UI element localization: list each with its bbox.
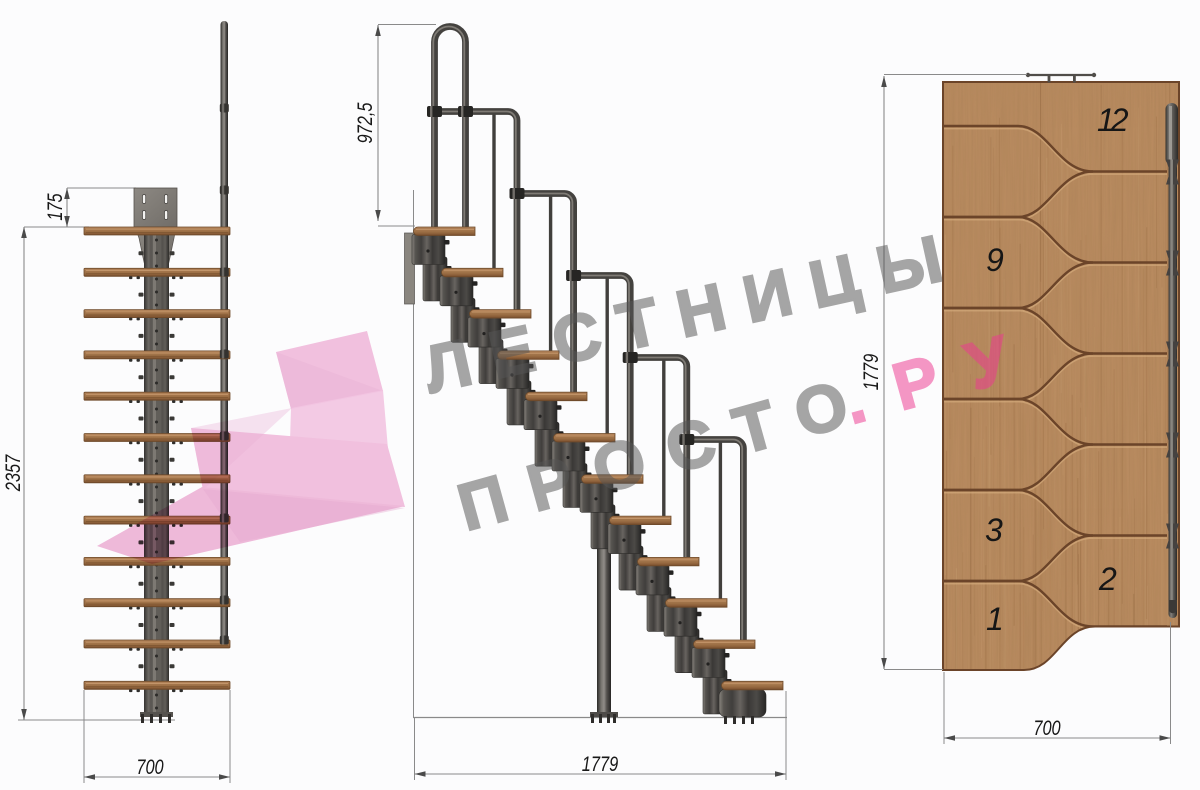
svg-text:2: 2 [1098, 561, 1117, 597]
svg-text:700: 700 [1033, 716, 1061, 739]
svg-text:972,5: 972,5 [353, 102, 376, 143]
svg-text:1779: 1779 [582, 752, 619, 775]
svg-text:3: 3 [985, 512, 1003, 548]
svg-text:175: 175 [43, 193, 66, 221]
svg-text:12: 12 [1097, 102, 1129, 138]
svg-text:9: 9 [986, 242, 1004, 278]
svg-text:1: 1 [986, 601, 1002, 637]
svg-text:2357: 2357 [1, 453, 24, 492]
svg-text:700: 700 [136, 755, 164, 778]
